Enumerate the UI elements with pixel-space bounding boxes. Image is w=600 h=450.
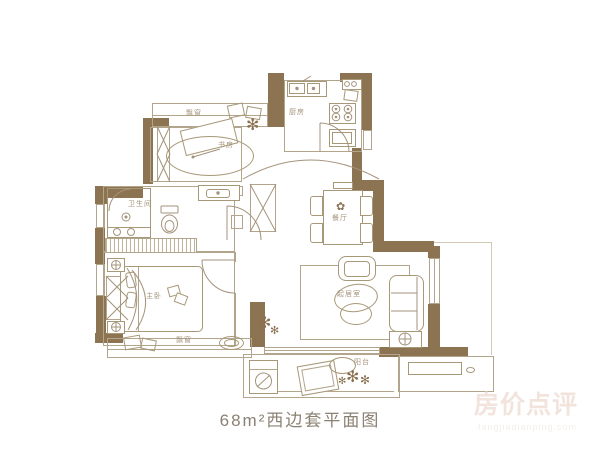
label-master-bedroom: 主卧 (146, 293, 162, 300)
wash-basin (206, 189, 230, 198)
plant-icon: ✻ (338, 377, 346, 387)
plant-icon: ✻ (360, 374, 370, 386)
door-post (231, 215, 243, 229)
armchair-seat (344, 261, 370, 277)
flower-icon: ✿ (336, 202, 345, 213)
dining-chair (360, 223, 373, 243)
balcony-slider-rail (264, 350, 380, 351)
stove (329, 103, 356, 124)
wall (373, 241, 434, 252)
shower (107, 188, 151, 228)
window-left-b (96, 264, 105, 296)
watermark-subtitle: fangjiadianping.com (478, 422, 577, 432)
window-living-mullion (434, 258, 435, 304)
plant-icon: ✻ (270, 326, 279, 337)
kitchen-corner-board (343, 89, 358, 102)
dining-chair (310, 196, 323, 216)
entrance-door-leaf (333, 182, 353, 189)
window-left-a (96, 204, 105, 228)
plant-icon: ✻ (346, 370, 359, 386)
pillow (125, 271, 137, 288)
label-study: 书房 (218, 142, 234, 149)
side-table (389, 331, 422, 348)
label-kitchen: 厨房 (289, 109, 305, 116)
coffee-table-round (340, 303, 372, 325)
wall (268, 73, 284, 127)
label-bay-window-top: 飘窗 (186, 110, 202, 117)
washing-machine-panel (249, 369, 278, 370)
washing-machine (249, 360, 278, 394)
label-bay-window-bottom: 飘窗 (176, 337, 192, 344)
label-living: 起居室 (337, 291, 361, 298)
plant-icon: ✻ (246, 118, 259, 134)
dining-chair (360, 196, 373, 216)
watermark-title: 房价点评 (474, 393, 578, 418)
bed-head-line (138, 267, 139, 331)
boundary-line (491, 242, 492, 355)
decor-plate-inner (224, 339, 239, 347)
nightstand (107, 321, 125, 334)
fridge-inner (332, 132, 352, 144)
bedroom-wall-line (235, 252, 236, 262)
kitchen-sink-basin (289, 83, 305, 94)
bathroom-vanity (107, 227, 151, 238)
window-kitchen (363, 130, 372, 150)
ac-knob (466, 367, 475, 373)
sofa (389, 275, 424, 332)
kitchen-sink-basin (307, 83, 320, 94)
wardrobe-hatch (105, 238, 197, 253)
label-bathroom: 卫生间 (128, 201, 152, 208)
wall (428, 246, 440, 258)
wall (362, 73, 372, 130)
ac-unit (408, 362, 462, 375)
label-dining: 餐厅 (332, 215, 348, 222)
study-rug (166, 136, 254, 176)
hall-cabinet (250, 184, 276, 232)
wall (352, 148, 362, 183)
nightstand (107, 258, 125, 272)
floor-plan-image: ✻ ✻ ✻ ✻ ✻ ✻ ✿ 飘窗 书房 厨房 卫生间 餐厅 主卧 起居室 飘窗 … (0, 0, 600, 450)
boundary-line (434, 242, 492, 243)
label-balcony: 阳台 (354, 359, 370, 366)
dining-chair (310, 223, 323, 243)
